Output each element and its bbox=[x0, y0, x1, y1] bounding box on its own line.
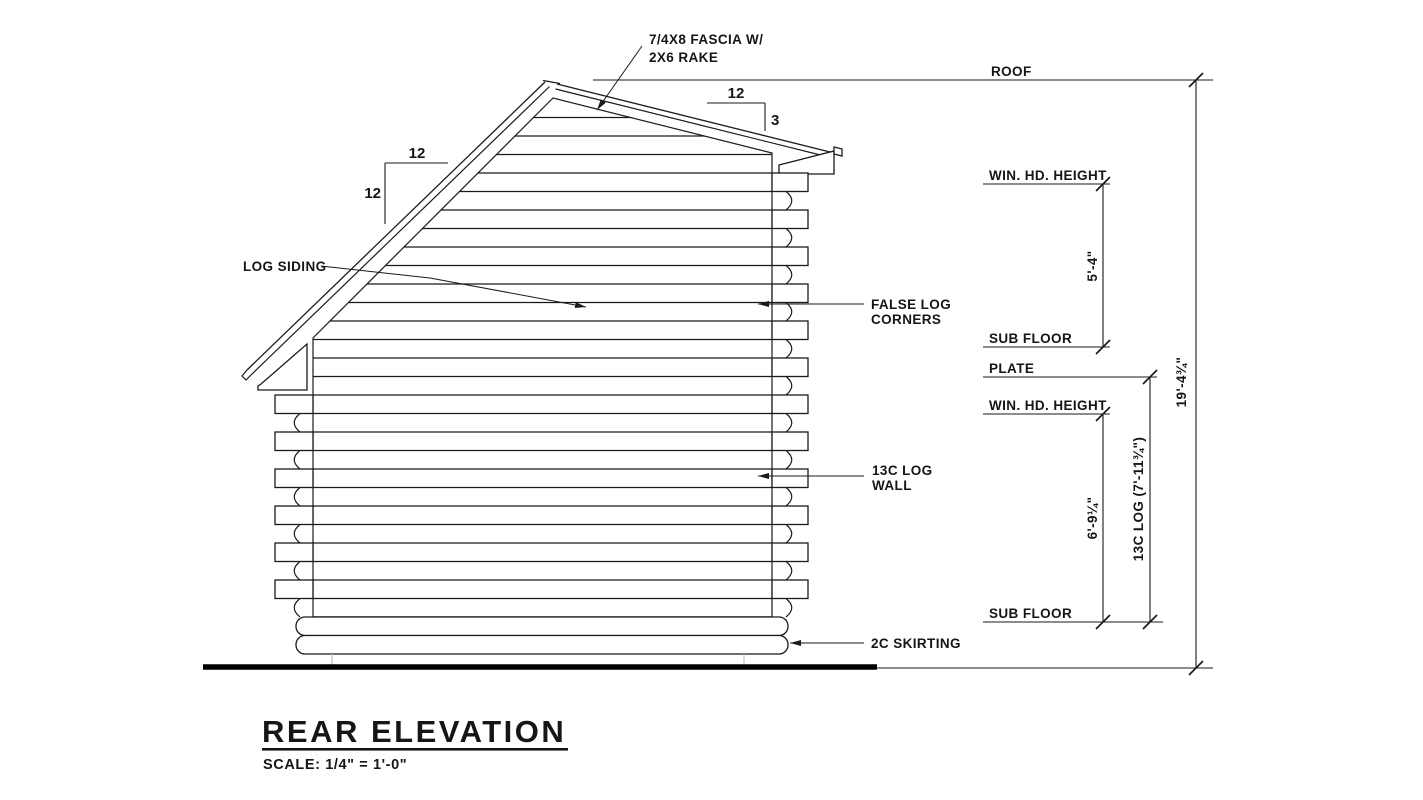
fascia-leader bbox=[597, 46, 642, 110]
log-end-arc-right bbox=[786, 562, 792, 581]
skirting-log bbox=[296, 617, 788, 636]
right-fascia-end bbox=[779, 151, 834, 174]
log-end-arcs bbox=[294, 192, 792, 618]
right-rake-tail bbox=[834, 147, 842, 156]
left-rake-trim bbox=[252, 87, 550, 375]
log-end-arc-left bbox=[294, 451, 300, 470]
false-corner-log-right bbox=[772, 247, 808, 266]
left-slope-rise: 12 bbox=[364, 185, 381, 202]
false-corner-log-left bbox=[275, 432, 313, 451]
left-rake-tail bbox=[242, 370, 252, 380]
drawing-title: REAR ELEVATION bbox=[262, 714, 566, 749]
title-block: REAR ELEVATION SCALE: 1/4" = 1'-0" bbox=[262, 714, 568, 773]
dim-overall-text: 19'-4¾" bbox=[1174, 357, 1189, 408]
false-corner-log-right bbox=[772, 321, 808, 340]
false-corner-log-right bbox=[772, 580, 808, 599]
false-corner-log-left bbox=[275, 543, 313, 562]
false-corner-log-left bbox=[275, 395, 313, 414]
log-end-arc-right bbox=[786, 377, 792, 396]
win-hd-lower-label: WIN. HD. HEIGHT bbox=[989, 398, 1107, 413]
drawing-sheet: 7/4X8 FASCIA W/ 2X6 RAKE 12 3 12 12 LOG … bbox=[0, 0, 1423, 800]
log-end-arc-right bbox=[786, 229, 792, 248]
drawing-scale: SCALE: 1/4" = 1'-0" bbox=[263, 757, 407, 773]
left-rake-outer bbox=[247, 82, 545, 370]
sub-floor-upper-label: SUB FLOOR bbox=[989, 331, 1072, 346]
left-slope-run: 12 bbox=[409, 145, 426, 162]
log-end-arc-right bbox=[786, 303, 792, 322]
log-end-arc-right bbox=[786, 414, 792, 433]
false-corner-log-right bbox=[772, 506, 808, 525]
right-rake-trim bbox=[556, 89, 833, 158]
log-course-lines bbox=[255, 118, 835, 618]
log-end-arc-right bbox=[786, 488, 792, 507]
skirting-label: 2C SKIRTING bbox=[871, 636, 961, 651]
false-corner-log-left bbox=[275, 506, 313, 525]
log-end-arc-left bbox=[294, 414, 300, 433]
roof-level-label: ROOF bbox=[991, 64, 1032, 79]
left-fascia-return bbox=[258, 344, 307, 390]
false-corner-log-right bbox=[772, 432, 808, 451]
dim-5-4-text: 5'-4" bbox=[1085, 250, 1100, 281]
rear-elevation-drawing: 7/4X8 FASCIA W/ 2X6 RAKE 12 3 12 12 LOG … bbox=[0, 0, 1423, 800]
false-corner-log-right bbox=[772, 284, 808, 303]
ridge-cap bbox=[543, 81, 560, 84]
dim-6-9-text: 6'-9¼" bbox=[1085, 497, 1100, 540]
log-wall-label-line2: WALL bbox=[872, 478, 912, 493]
false-corner-log-right bbox=[772, 358, 808, 377]
log-wall-label-line1: 13C LOG bbox=[872, 463, 933, 478]
log-end-arc-right bbox=[786, 451, 792, 470]
dim-13c-log-text: 13C LOG (7'-11¾") bbox=[1131, 437, 1146, 561]
skirting-courses bbox=[296, 617, 788, 665]
log-siding-label: LOG SIDING bbox=[243, 259, 327, 274]
skirting-log bbox=[296, 636, 788, 655]
log-end-arc-left bbox=[294, 525, 300, 544]
roof-structure bbox=[242, 81, 842, 391]
right-rake-outer bbox=[557, 84, 834, 153]
log-siding-leader bbox=[321, 266, 586, 307]
log-end-arc-right bbox=[786, 340, 792, 359]
sub-floor-lower-label: SUB FLOOR bbox=[989, 606, 1072, 621]
right-slope-run: 12 bbox=[728, 85, 745, 102]
fascia-label-line1: 7/4X8 FASCIA W/ bbox=[649, 32, 763, 47]
false-corner-log-left bbox=[275, 580, 313, 599]
fascia-label-line2: 2X6 RAKE bbox=[649, 50, 718, 65]
text-labels: 7/4X8 FASCIA W/ 2X6 RAKE 12 3 12 12 LOG … bbox=[243, 32, 1189, 651]
log-end-arc-right bbox=[786, 525, 792, 544]
false-corner-log-right bbox=[772, 395, 808, 414]
log-end-arc-left bbox=[294, 562, 300, 581]
false-corner-log-right bbox=[772, 173, 808, 192]
log-end-arc-left bbox=[294, 599, 300, 618]
false-corners-label-line1: FALSE LOG bbox=[871, 297, 951, 312]
log-end-arc-left bbox=[294, 488, 300, 507]
false-corner-log-right bbox=[772, 469, 808, 488]
false-corner-log-left bbox=[275, 469, 313, 488]
false-corner-log-right bbox=[772, 210, 808, 229]
right-slope-rise: 3 bbox=[771, 112, 779, 129]
false-corner-logs bbox=[275, 173, 808, 599]
log-end-arc-right bbox=[786, 266, 792, 285]
ground bbox=[203, 667, 1213, 668]
false-corner-log-right bbox=[772, 543, 808, 562]
false-corners-label-line2: CORNERS bbox=[871, 312, 941, 327]
win-hd-upper-label: WIN. HD. HEIGHT bbox=[989, 168, 1107, 183]
title-underline bbox=[262, 748, 568, 751]
log-end-arc-right bbox=[786, 599, 792, 618]
log-end-arc-right bbox=[786, 192, 792, 211]
plate-label: PLATE bbox=[989, 361, 1034, 376]
